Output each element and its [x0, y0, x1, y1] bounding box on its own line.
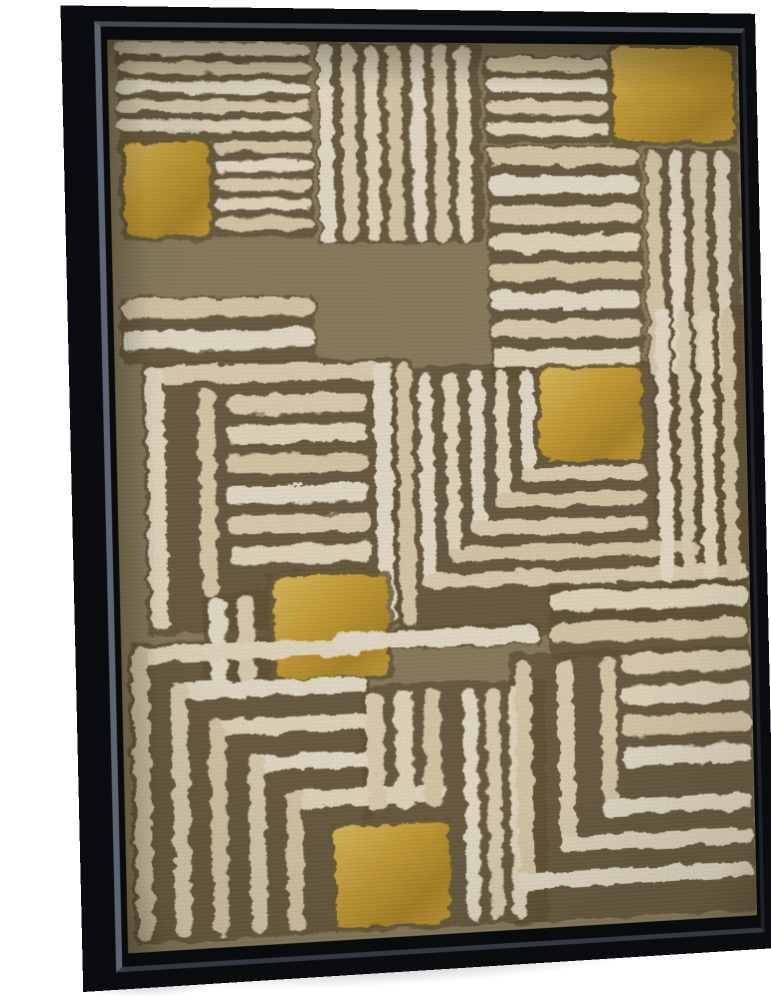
canvas-vignette: [107, 40, 757, 953]
frame-inner-lip: [94, 21, 765, 972]
canvas-artwork: [107, 40, 757, 953]
frame-well-gap: [101, 26, 761, 967]
product-scene: [0, 0, 771, 1000]
floating-frame: [60, 5, 771, 992]
perspective-wrapper: [78, 10, 771, 976]
